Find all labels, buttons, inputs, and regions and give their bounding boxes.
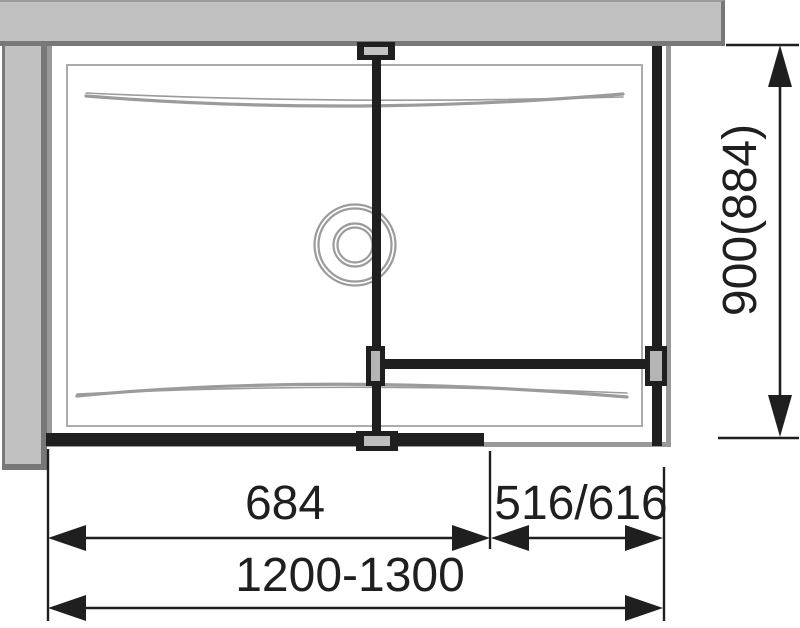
wall-mount-bracket-top-slot	[364, 47, 388, 55]
dim-label-depth: 900(884)	[717, 124, 765, 316]
dim-label-overall-width: 1200-1300	[235, 552, 465, 600]
wall-left	[2, 46, 47, 470]
support-bar-clamp-right-slot	[650, 351, 662, 381]
fixed-panel	[652, 46, 662, 446]
dim-label-side-panel-width: 516/616	[494, 480, 668, 528]
support-bar-clamp-left-slot	[371, 351, 380, 381]
threshold-bracket-bottom-slot	[364, 436, 390, 446]
support-bar	[381, 359, 652, 369]
tray-inner-edge	[66, 64, 643, 427]
dim-label-door-width: 684	[245, 480, 325, 528]
dim-line-depth	[768, 45, 792, 437]
wall-top	[0, 0, 725, 46]
shower-enclosure-diagram: 684 516/616 1200-1300 900(884)	[0, 0, 800, 628]
door-threshold-profile	[46, 433, 484, 446]
